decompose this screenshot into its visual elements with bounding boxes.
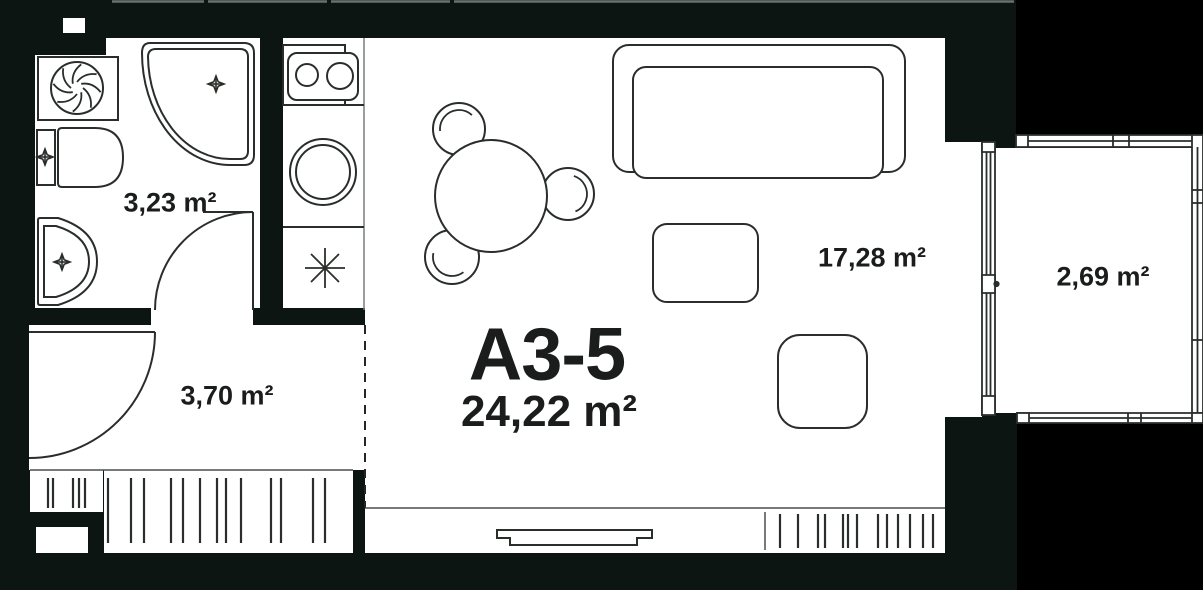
room-bathroom-floor (35, 38, 260, 308)
page-background-bottom-right (1017, 424, 1203, 590)
room-kitchen-floor (283, 38, 365, 310)
wall-bathroom-bottom (28, 308, 151, 325)
wall-bathroom-kitchen (260, 38, 283, 308)
balcony-glass-bottom (1017, 413, 1203, 423)
floor-plan: 3,23 m² 3,70 m² 17,28 m² 2,69 m² A3-5 24… (0, 0, 1203, 590)
balcony-area-label: 2,69 m² (1056, 262, 1149, 293)
bathroom-area-label: 3,23 m² (123, 188, 216, 219)
unit-label: A3-5 (469, 312, 625, 397)
living-area-label: 17,28 m² (818, 243, 926, 274)
balcony-glass-right (1192, 135, 1203, 423)
balcony-glass-top (1016, 135, 1203, 147)
shaft-marker (63, 18, 85, 33)
page-background-top-right (1016, 0, 1203, 136)
unit-area-label: 24,22 m² (461, 387, 637, 437)
window-recess (945, 142, 982, 417)
wall-kitchen-bottom (253, 308, 365, 325)
hallway-area-label: 3,70 m² (180, 381, 273, 412)
wall-wardrobe-stub (353, 470, 365, 555)
room-living-floor (365, 38, 945, 553)
wardrobe-area-main (104, 470, 353, 553)
bathroom-door-opening (151, 305, 253, 327)
wall-bathroom-niche (35, 38, 106, 55)
wall-niche-box (36, 527, 88, 553)
wardrobe-area-left (30, 470, 103, 512)
balcony-window-door (982, 142, 995, 415)
